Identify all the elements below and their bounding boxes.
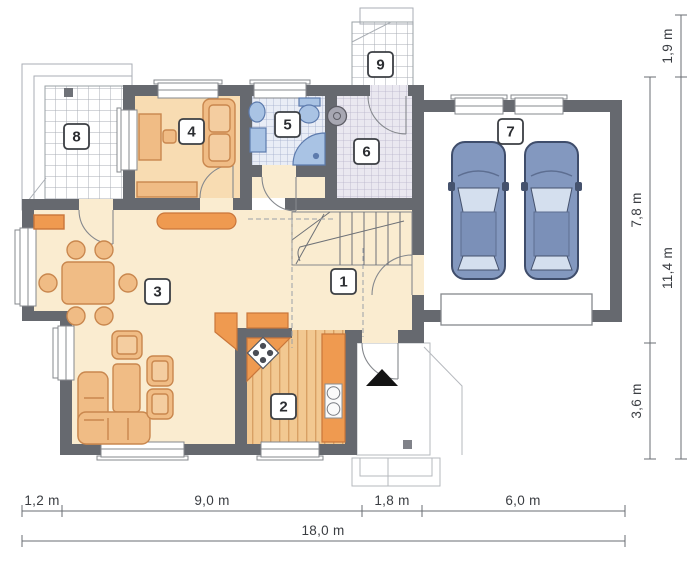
coffee-table <box>113 364 140 412</box>
terrace-drain <box>64 88 73 97</box>
dim-bottom-4: 6,0 m <box>505 493 540 508</box>
boiler <box>328 107 347 126</box>
desk <box>139 114 161 160</box>
chair <box>67 307 85 325</box>
entry-steps <box>352 458 440 486</box>
hall-cabinet <box>157 213 236 229</box>
utility-fixtures <box>328 107 347 126</box>
chair <box>119 274 137 292</box>
floor-plan-svg: 1 2 3 4 5 6 7 8 <box>0 0 700 566</box>
sink-unit <box>325 384 342 418</box>
window-terrace-door <box>117 108 137 172</box>
dim-bottom-2: 9,0 m <box>194 493 229 508</box>
chair <box>67 241 85 259</box>
room-label-9: 9 <box>368 52 393 77</box>
dim-right-2: 7,8 m <box>629 192 644 227</box>
toilet <box>299 105 319 123</box>
window-garage-1 <box>451 95 507 114</box>
dim-bottom-3: 1,8 m <box>374 493 409 508</box>
room4-cabinet <box>137 182 197 197</box>
floor-plan-page: 1 2 3 4 5 6 7 8 <box>0 0 700 566</box>
window-garage-2 <box>511 95 567 114</box>
window-south-living <box>97 442 188 460</box>
room-number: 4 <box>187 124 196 141</box>
sink <box>249 102 265 122</box>
dim-right-1: 1,9 m <box>660 28 675 63</box>
chair <box>39 274 57 292</box>
dining-table <box>62 262 114 304</box>
room-number: 6 <box>362 144 370 161</box>
room-label-1: 1 <box>331 269 356 294</box>
desk-chair <box>163 130 176 143</box>
window-bay-west <box>15 228 36 306</box>
sideboard <box>34 215 64 229</box>
dim-right-3: 3,6 m <box>629 383 644 418</box>
chair <box>95 307 113 325</box>
room-label-4: 4 <box>179 119 204 144</box>
room-number: 3 <box>153 284 161 301</box>
porch-floor <box>357 343 430 455</box>
room-number: 9 <box>376 57 384 74</box>
car-1 <box>448 142 509 279</box>
room-label-5: 5 <box>275 112 300 137</box>
car-2 <box>521 142 582 279</box>
room-label-2: 2 <box>271 394 296 419</box>
room-number: 1 <box>339 274 347 291</box>
dim-right-total: 11,4 m <box>660 247 675 289</box>
room-label-6: 6 <box>354 139 379 164</box>
room-number: 7 <box>506 124 514 141</box>
kitchen-counter-top <box>247 313 288 328</box>
room-label-3: 3 <box>145 279 170 304</box>
porch-drain <box>403 440 412 449</box>
chair <box>95 241 113 259</box>
room-number: 5 <box>283 117 291 134</box>
corner-sofa <box>78 412 150 444</box>
room-number: 8 <box>72 129 80 146</box>
dim-bottom-total: 18,0 m <box>301 523 344 538</box>
window-west-lower <box>53 326 74 380</box>
garage-door <box>441 294 592 325</box>
window-south-kitchen <box>257 442 323 460</box>
dim-bottom-1: 1,2 m <box>24 493 59 508</box>
room-number: 2 <box>279 399 287 416</box>
bath-cabinet <box>250 128 266 152</box>
room-label-8: 8 <box>64 124 89 149</box>
window-bath-top <box>250 80 310 98</box>
room-label-7: 7 <box>498 119 523 144</box>
window-room4-top <box>154 80 222 98</box>
